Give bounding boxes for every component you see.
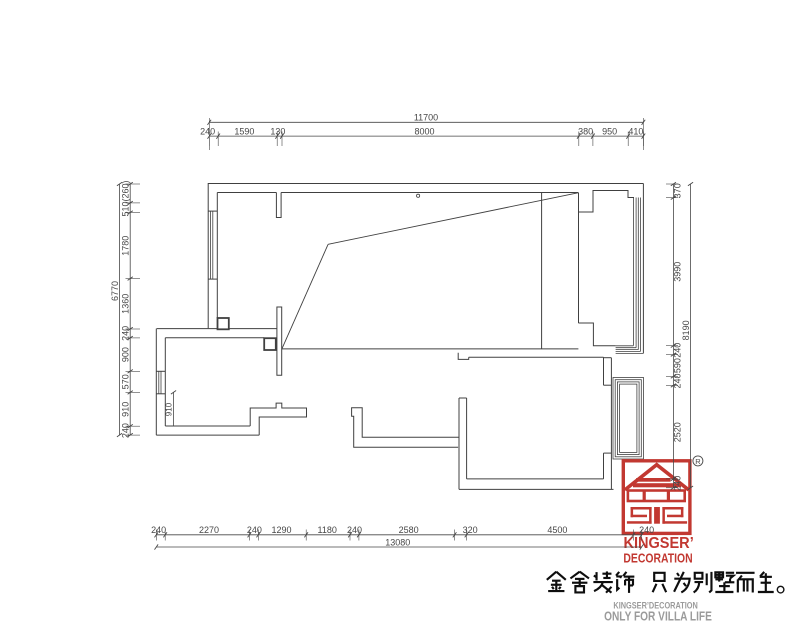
- svg-text:8000: 8000: [414, 126, 434, 136]
- svg-text:2520: 2520: [673, 422, 683, 442]
- svg-text:240: 240: [673, 343, 683, 358]
- svg-text:1290: 1290: [271, 525, 291, 535]
- svg-text:3990: 3990: [673, 262, 683, 282]
- svg-text:1360: 1360: [121, 294, 131, 314]
- svg-text:510(260): 510(260): [121, 180, 131, 216]
- svg-text:240: 240: [347, 525, 362, 535]
- svg-text:R: R: [695, 457, 701, 466]
- svg-text:240: 240: [673, 476, 683, 491]
- svg-text:900: 900: [121, 347, 131, 362]
- svg-text:240: 240: [639, 525, 654, 535]
- svg-text:DECORATION: DECORATION: [623, 550, 692, 565]
- svg-text:410: 410: [628, 126, 643, 136]
- svg-text:8190: 8190: [681, 320, 691, 340]
- svg-text:240: 240: [247, 525, 262, 535]
- svg-text:950: 950: [602, 126, 617, 136]
- svg-text:ONLY FOR VILLA LIFE: ONLY FOR VILLA LIFE: [604, 608, 712, 623]
- svg-text:570: 570: [121, 374, 131, 389]
- svg-text:2580: 2580: [399, 525, 419, 535]
- svg-text:6770: 6770: [110, 281, 120, 301]
- svg-text:320: 320: [463, 525, 478, 535]
- svg-text:910: 910: [121, 402, 131, 417]
- svg-text:130: 130: [270, 126, 285, 136]
- svg-text:240: 240: [121, 423, 131, 438]
- svg-text:240: 240: [673, 373, 683, 388]
- svg-text:240: 240: [121, 326, 131, 341]
- svg-text:1590: 1590: [234, 126, 254, 136]
- svg-text:2270: 2270: [199, 525, 219, 535]
- svg-text:590: 590: [673, 358, 683, 373]
- svg-text:910: 910: [165, 402, 174, 416]
- svg-text:240: 240: [200, 126, 215, 136]
- svg-text:1180: 1180: [318, 525, 337, 535]
- svg-text:13080: 13080: [385, 537, 410, 547]
- svg-text:4500: 4500: [547, 525, 567, 535]
- svg-text:380: 380: [578, 126, 593, 136]
- svg-text:11700: 11700: [414, 113, 438, 123]
- svg-text:1780: 1780: [121, 236, 131, 256]
- svg-text:240: 240: [151, 525, 166, 535]
- svg-text:370: 370: [673, 183, 683, 198]
